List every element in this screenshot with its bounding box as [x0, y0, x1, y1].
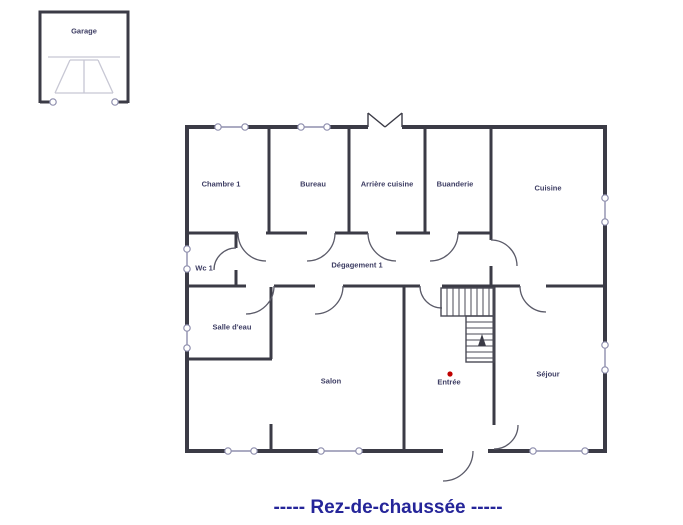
room-label-wc-1: Wc 1: [195, 264, 213, 273]
door-arc-bureau: [307, 233, 335, 261]
floor-title: ----- Rez-de-chaussée -----: [273, 497, 502, 519]
room-label-sejour: Séjour: [536, 370, 559, 379]
exterior-walls: [185, 125, 607, 453]
staircase-icon: [441, 288, 494, 362]
door-arc-cuisine-sejour: [520, 286, 546, 312]
room-label-entree: Entrée: [437, 378, 460, 387]
window-icons: [187, 127, 605, 451]
garage-door-icon: [48, 57, 120, 93]
room-label-bureau: Bureau: [300, 180, 326, 189]
door-arc-entree-sejour: [494, 425, 518, 449]
door-arc-salon: [315, 286, 343, 314]
door-arc-wc-1: [214, 248, 236, 270]
door-arc-main-entrance: [443, 451, 473, 481]
door-arc-arriere-cuisine: [368, 233, 396, 261]
back-door-icon: [368, 113, 402, 127]
room-label-degagement-1: Dégagement 1: [331, 261, 382, 270]
room-label-buanderie: Buanderie: [437, 180, 474, 189]
room-label-cuisine: Cuisine: [534, 184, 561, 193]
room-label-salon: Salon: [321, 377, 341, 386]
floorplan-canvas: Garage Chambre 1 Bureau Arrière cuisine …: [0, 0, 683, 525]
room-label-arriere-cuisine: Arrière cuisine: [361, 180, 414, 189]
room-label-salle-d-eau: Salle d'eau: [213, 323, 252, 332]
door-arc-chambre-1: [238, 233, 266, 261]
window-end-circles: [184, 124, 608, 454]
door-arc-entree: [420, 286, 442, 308]
room-label-garage: Garage: [71, 27, 97, 36]
door-arc-cuisine: [491, 240, 517, 266]
garage-door-posts: [50, 99, 118, 105]
door-arc-buanderie: [430, 233, 458, 261]
entrance-marker-dot: [447, 371, 452, 376]
door-arcs: [214, 233, 546, 481]
interior-walls: [186, 128, 606, 452]
room-label-chambre-1: Chambre 1: [202, 180, 241, 189]
